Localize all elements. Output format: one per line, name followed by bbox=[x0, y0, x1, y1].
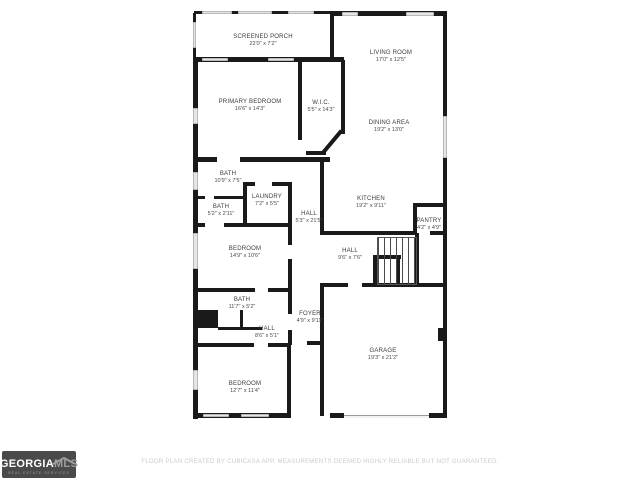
room-label-kitchen: KITCHEN19'2" x 9'11" bbox=[356, 196, 386, 210]
room-label-hall-1: HALL5'3" x 21'5" bbox=[295, 211, 322, 225]
garage-door-line bbox=[344, 415, 429, 418]
wall-segment bbox=[330, 13, 334, 62]
room-label-foyer: FOYER4'9" x 9'11" bbox=[297, 311, 324, 325]
wall-segment bbox=[330, 413, 344, 418]
wall-segment bbox=[193, 196, 205, 199]
wall-segment bbox=[224, 223, 290, 227]
room-label-laundry: LAUNDRY7'2" x 5'5" bbox=[252, 194, 282, 208]
wall-segment bbox=[320, 285, 324, 416]
window-marker bbox=[268, 58, 294, 61]
room-label-living-room: LIVING ROOM17'0" x 12'5" bbox=[370, 50, 412, 64]
window-marker bbox=[406, 12, 434, 16]
window-marker bbox=[288, 11, 314, 14]
wall-segment bbox=[443, 235, 447, 418]
room-label-screened-porch: SCREENED PORCH22'0" x 7'2" bbox=[233, 34, 292, 48]
wall-segment bbox=[214, 196, 245, 199]
disclaimer-text: FLOOR PLAN CREATED BY CUBICASA APP, MEAS… bbox=[0, 459, 640, 465]
wall-segment bbox=[288, 330, 292, 345]
wall-segment bbox=[193, 288, 255, 292]
window-marker bbox=[193, 233, 198, 269]
wall-segment bbox=[288, 223, 292, 245]
room-label-dining-area: DINING AREA19'2" x 13'0" bbox=[369, 120, 410, 134]
wall-segment bbox=[243, 182, 247, 227]
wall-segment bbox=[193, 157, 217, 162]
door-block bbox=[438, 328, 446, 341]
wall-segment bbox=[307, 341, 324, 345]
staircase bbox=[377, 237, 417, 285]
room-label-bath-1: BATH10'9" x 7'5" bbox=[214, 171, 241, 185]
wall-segment bbox=[240, 310, 243, 327]
wall-segment bbox=[320, 231, 416, 235]
wall-segment bbox=[288, 182, 292, 227]
room-label-hall-3: HALL8'6" x 5'1" bbox=[255, 326, 279, 340]
room-label-bedroom-2: BEDROOM12'7" x 11'4" bbox=[229, 381, 261, 395]
wall-segment bbox=[306, 151, 326, 155]
window-marker bbox=[193, 22, 196, 48]
room-label-primary-bedroom: PRIMARY BEDROOM16'6" x 14'3" bbox=[219, 99, 282, 113]
wall-segment bbox=[298, 62, 302, 140]
wall-segment bbox=[320, 283, 348, 287]
wall-segment bbox=[429, 413, 447, 418]
window-marker bbox=[203, 414, 229, 417]
window-marker bbox=[238, 11, 272, 14]
window-marker bbox=[193, 108, 198, 124]
wall-segment bbox=[240, 157, 330, 162]
room-label-garage: GARAGE19'3" x 21'2" bbox=[368, 348, 398, 362]
wall-segment bbox=[341, 60, 345, 134]
room-label-bedroom-1: BEDROOM14'9" x 10'6" bbox=[229, 246, 261, 260]
room-label-bath-3: BATH11'7" x 5'2" bbox=[229, 297, 256, 311]
window-marker bbox=[443, 116, 447, 158]
floor-plan-canvas: SCREENED PORCH22'0" x 7'2" LIVING ROOM17… bbox=[0, 0, 640, 480]
logo-tagline: REAL ESTATE SERVICES bbox=[8, 471, 70, 475]
window-marker bbox=[241, 414, 269, 417]
room-label-wic: W.I.C.5'5" x 14'3" bbox=[307, 100, 334, 114]
room-label-hall-2: HALL9'6" x 7'6" bbox=[338, 248, 362, 262]
window-marker bbox=[193, 370, 198, 390]
wall-segment bbox=[288, 288, 292, 314]
room-label-bath-2: BATH5'2" x 2'11" bbox=[208, 204, 235, 218]
wall-segment bbox=[413, 203, 443, 207]
window-marker bbox=[202, 58, 228, 61]
wall-segment bbox=[193, 343, 254, 347]
room-label-pantry: PANTRY4'2" x 4'9" bbox=[417, 218, 442, 232]
wall-segment bbox=[287, 345, 291, 417]
window-marker bbox=[202, 11, 232, 14]
wall-segment bbox=[193, 223, 205, 227]
fixture-block bbox=[196, 310, 218, 328]
window-marker bbox=[193, 172, 198, 190]
window-marker bbox=[342, 12, 358, 16]
